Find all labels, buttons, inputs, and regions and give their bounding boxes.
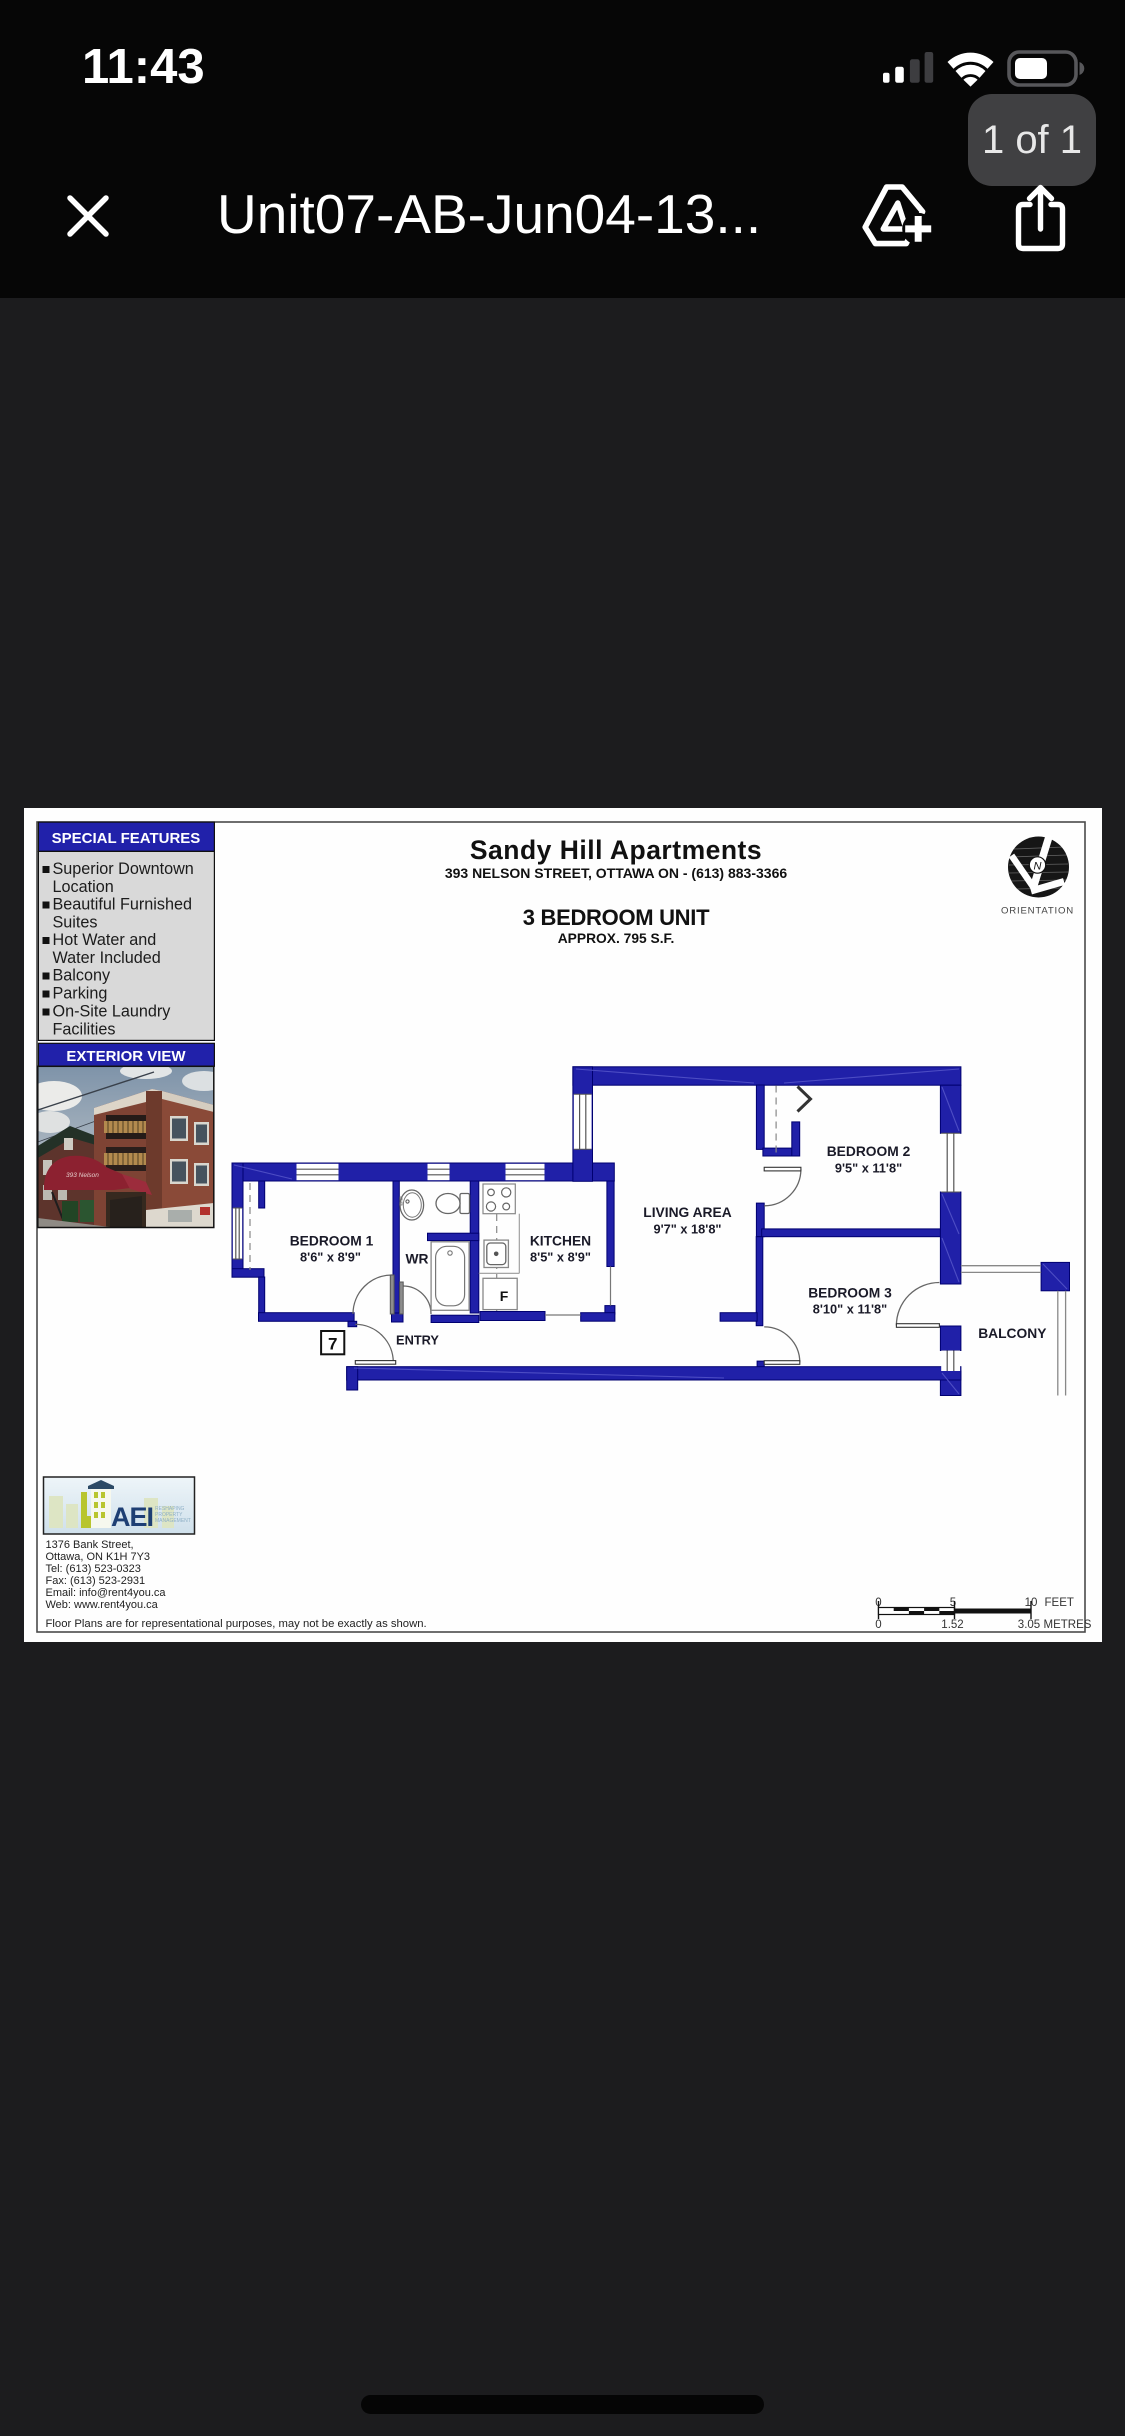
svg-text:1376 Bank Street,: 1376 Bank Street, (46, 1539, 134, 1551)
svg-text:N: N (1034, 861, 1042, 873)
svg-text:APPROX. 795 S.F.: APPROX. 795 S.F. (558, 931, 675, 946)
svg-text:393 NELSON STREET, OTTAWA ON -: 393 NELSON STREET, OTTAWA ON - (613) 883… (445, 865, 788, 881)
svg-text:AEI: AEI (111, 1502, 153, 1532)
svg-text:WR: WR (406, 1252, 429, 1267)
svg-text:Parking: Parking (53, 985, 108, 1003)
svg-text:1.52: 1.52 (941, 1619, 963, 1631)
svg-text:Location: Location (53, 878, 114, 896)
svg-text:Tel: (613) 523-0323: Tel: (613) 523-0323 (46, 1563, 141, 1575)
svg-text:On-Site Laundry: On-Site Laundry (53, 1003, 172, 1021)
svg-text:8'10" x 11'8": 8'10" x 11'8" (813, 1302, 887, 1317)
svg-text:Water Included: Water Included (53, 949, 161, 967)
svg-text:LIVING AREA: LIVING AREA (643, 1205, 731, 1220)
svg-text:BEDROOM 1: BEDROOM 1 (290, 1234, 374, 1249)
svg-text:ORIENTATION: ORIENTATION (1001, 906, 1074, 917)
svg-text:MANAGEMENT: MANAGEMENT (155, 1518, 191, 1524)
svg-text:BALCONY: BALCONY (978, 1326, 1046, 1341)
svg-text:8'5" x 8'9": 8'5" x 8'9" (530, 1250, 591, 1265)
svg-text:Hot Water and: Hot Water and (53, 931, 157, 949)
svg-text:METRES: METRES (1044, 1619, 1092, 1631)
svg-text:3.05: 3.05 (1018, 1619, 1040, 1631)
svg-text:EXTERIOR VIEW: EXTERIOR VIEW (66, 1048, 186, 1065)
svg-text:Superior Downtown: Superior Downtown (53, 860, 194, 878)
svg-text:393 Nelson: 393 Nelson (66, 1172, 99, 1179)
svg-text:KITCHEN: KITCHEN (530, 1234, 591, 1249)
svg-text:Web: www.rent4you.ca: Web: www.rent4you.ca (46, 1599, 159, 1611)
svg-text:Sandy Hill Apartments: Sandy Hill Apartments (470, 835, 762, 865)
svg-text:Email: info@rent4you.ca: Email: info@rent4you.ca (46, 1587, 167, 1599)
svg-text:Floor Plans are for representa: Floor Plans are for representational pur… (46, 1618, 427, 1630)
svg-text:Suites: Suites (53, 914, 98, 932)
svg-text:Ottawa, ON K1H 7Y3: Ottawa, ON K1H 7Y3 (46, 1551, 151, 1563)
svg-text:0: 0 (875, 1619, 881, 1631)
svg-text:7: 7 (328, 1335, 337, 1354)
svg-text:9'5" x 11'8": 9'5" x 11'8" (835, 1161, 902, 1176)
svg-text:Balcony: Balcony (53, 967, 111, 985)
svg-text:Facilities: Facilities (53, 1021, 116, 1039)
svg-text:SPECIAL FEATURES: SPECIAL FEATURES (52, 830, 201, 847)
svg-text:FEET: FEET (1045, 1597, 1074, 1609)
svg-text:ENTRY: ENTRY (396, 1333, 439, 1348)
svg-text:BEDROOM 2: BEDROOM 2 (827, 1144, 911, 1159)
svg-text:3 BEDROOM UNIT: 3 BEDROOM UNIT (523, 905, 710, 930)
svg-text:8'6" x 8'9": 8'6" x 8'9" (300, 1250, 361, 1265)
svg-text:Beautiful Furnished: Beautiful Furnished (53, 896, 192, 914)
svg-text:Fax: (613) 523-2931: Fax: (613) 523-2931 (46, 1575, 146, 1587)
svg-text:9'7" x 18'8": 9'7" x 18'8" (653, 1222, 721, 1237)
svg-text:F: F (500, 1288, 509, 1304)
svg-text:BEDROOM 3: BEDROOM 3 (808, 1286, 892, 1301)
